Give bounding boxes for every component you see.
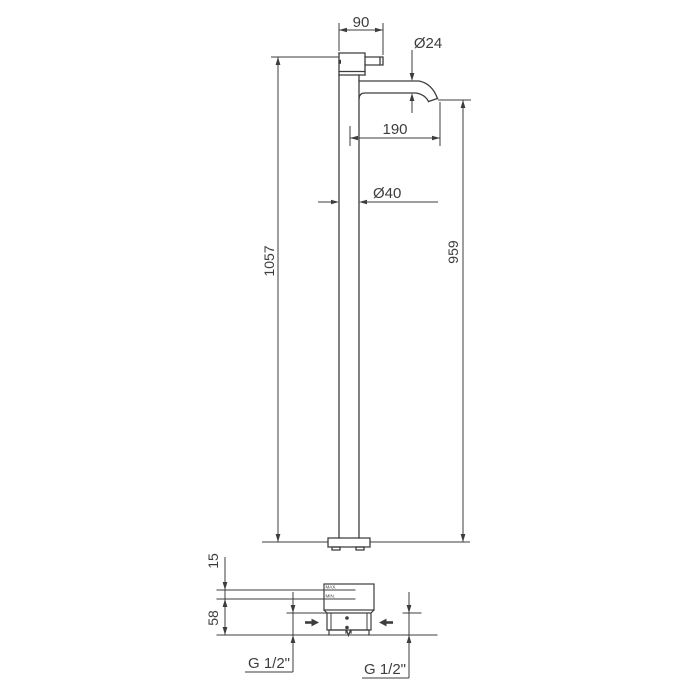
detail-screw-dots <box>345 616 349 629</box>
dim-handle-width-label: 90 <box>353 14 370 31</box>
dim-embed-depth-label: 58 <box>205 610 221 626</box>
detail-foot-right <box>351 630 369 635</box>
faucet-base-plate <box>328 538 370 547</box>
faucet-base-foot-right <box>356 547 364 550</box>
dim-floor-range-label: 15 <box>205 553 221 569</box>
faucet-spout-top-edge <box>359 81 438 99</box>
faucet-spout-outlet-face <box>429 99 438 102</box>
arrowheads-main <box>276 28 466 542</box>
faucet-base-foot-left <box>332 547 340 550</box>
dim-spout-diameter-label: Ø24 <box>414 35 442 52</box>
dim-column-diameter-label: Ø40 <box>373 185 401 202</box>
technical-drawing-page: 90 Ø24 190 Ø40 1057 959 <box>0 0 700 700</box>
flow-arrows <box>305 619 393 627</box>
detail-min-label: MIN. <box>326 594 336 599</box>
dim-total-height-label: 1057 <box>261 245 277 276</box>
detail-lower-body-inner-lines <box>331 613 367 630</box>
detail-foot-left <box>329 630 346 635</box>
faucet-lever-outline <box>365 57 383 65</box>
left-connection-label: G 1/2" <box>248 655 290 672</box>
faucet-head-joint-lines <box>339 72 365 76</box>
dim-spout-height-label: 959 <box>445 240 461 264</box>
dimension-drawing-canvas: 90 Ø24 190 Ø40 1057 959 <box>0 0 700 700</box>
right-connection-label: G 1/2" <box>364 661 406 678</box>
faucet-spout-bottom-edge <box>359 93 429 102</box>
dim-spout-reach-label: 190 <box>382 121 407 138</box>
dimension-lines-main <box>271 23 471 542</box>
detail-max-label: MAX. <box>326 585 337 590</box>
mounting-detail-view <box>217 584 437 636</box>
detail-lower-body <box>327 613 371 630</box>
